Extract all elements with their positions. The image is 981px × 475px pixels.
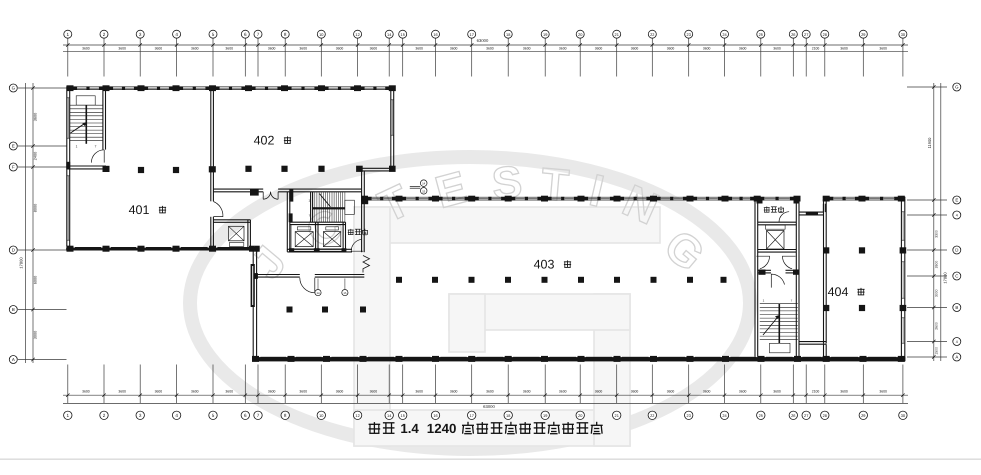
svg-text:3600: 3600 xyxy=(879,47,887,51)
svg-text:3600: 3600 xyxy=(118,390,126,394)
svg-text:8: 8 xyxy=(284,413,287,418)
svg-text:D: D xyxy=(12,248,15,253)
svg-text:2100: 2100 xyxy=(812,47,820,51)
svg-text:3600: 3600 xyxy=(370,390,378,394)
svg-text:G: G xyxy=(955,85,959,90)
svg-text:2600: 2600 xyxy=(934,261,938,269)
svg-text:18: 18 xyxy=(506,32,510,37)
svg-text:3600: 3600 xyxy=(336,47,344,51)
svg-text:7: 7 xyxy=(95,145,97,149)
svg-text:15: 15 xyxy=(401,32,405,37)
svg-text:16: 16 xyxy=(433,32,437,37)
svg-text:3600: 3600 xyxy=(336,390,344,394)
svg-text:3600: 3600 xyxy=(225,390,233,394)
svg-text:7: 7 xyxy=(257,413,260,418)
svg-text:3000: 3000 xyxy=(934,289,938,297)
svg-text:2100: 2100 xyxy=(812,390,820,394)
svg-text:404: 404 xyxy=(828,285,849,299)
svg-text:E: E xyxy=(955,198,958,203)
svg-text:B: B xyxy=(12,307,15,312)
svg-text:1500: 1500 xyxy=(934,347,938,355)
svg-text:16: 16 xyxy=(433,413,437,418)
svg-text:11900: 11900 xyxy=(927,137,932,149)
svg-text:3600: 3600 xyxy=(450,390,458,394)
svg-text:25: 25 xyxy=(759,32,763,37)
svg-text:3600: 3600 xyxy=(631,390,639,394)
svg-text:3600: 3600 xyxy=(191,47,199,51)
svg-text:3600: 3600 xyxy=(155,390,163,394)
svg-text:3600: 3600 xyxy=(268,390,276,394)
svg-text:25: 25 xyxy=(759,413,763,418)
svg-text:1: 1 xyxy=(67,32,70,37)
svg-text:15: 15 xyxy=(422,189,426,193)
svg-text:4: 4 xyxy=(956,214,958,218)
svg-text:3600: 3600 xyxy=(370,47,378,51)
svg-text:23: 23 xyxy=(687,32,691,37)
svg-text:12: 12 xyxy=(355,413,359,418)
svg-text:18: 18 xyxy=(506,413,510,418)
svg-text:3600: 3600 xyxy=(155,47,163,51)
svg-text:B: B xyxy=(955,305,958,310)
svg-text:2: 2 xyxy=(103,32,106,37)
svg-text:27: 27 xyxy=(804,413,808,418)
svg-text:4: 4 xyxy=(175,413,178,418)
svg-text:A: A xyxy=(955,355,958,360)
svg-text:26: 26 xyxy=(791,32,795,37)
svg-text:2400: 2400 xyxy=(33,152,37,160)
svg-text:21: 21 xyxy=(615,32,619,37)
svg-text:3: 3 xyxy=(139,413,142,418)
svg-text:17: 17 xyxy=(470,413,474,418)
svg-text:19: 19 xyxy=(543,32,547,37)
svg-text:3300: 3300 xyxy=(934,230,938,238)
svg-text:3600: 3600 xyxy=(523,47,531,51)
svg-text:402: 402 xyxy=(254,134,275,148)
svg-text:14: 14 xyxy=(316,291,320,295)
svg-text:63000: 63000 xyxy=(477,38,489,43)
svg-text:3600: 3600 xyxy=(82,390,90,394)
svg-text:7: 7 xyxy=(257,32,260,37)
svg-text:63000: 63000 xyxy=(483,404,495,409)
svg-text:3600: 3600 xyxy=(268,47,276,51)
svg-text:A: A xyxy=(12,357,15,362)
svg-text:3600: 3600 xyxy=(299,47,307,51)
svg-text:2: 2 xyxy=(103,413,106,418)
svg-text:3600: 3600 xyxy=(415,390,423,394)
svg-text:17800: 17800 xyxy=(19,257,24,269)
svg-text:3600: 3600 xyxy=(739,47,747,51)
svg-text:F: F xyxy=(12,165,15,170)
svg-text:27: 27 xyxy=(804,32,808,37)
svg-text:3600: 3600 xyxy=(773,390,781,394)
svg-text:3600: 3600 xyxy=(840,390,848,394)
svg-text:5: 5 xyxy=(212,413,215,418)
svg-text:3600: 3600 xyxy=(631,47,639,51)
svg-text:3600: 3600 xyxy=(191,390,199,394)
svg-text:3600: 3600 xyxy=(667,47,675,51)
svg-text:3600: 3600 xyxy=(33,113,37,121)
svg-text:D: D xyxy=(955,248,958,253)
svg-text:3600: 3600 xyxy=(703,47,711,51)
svg-text:E: E xyxy=(12,144,15,149)
svg-text:3600: 3600 xyxy=(595,47,603,51)
svg-text:3600: 3600 xyxy=(840,47,848,51)
svg-text:29: 29 xyxy=(861,32,865,37)
svg-text:6: 6 xyxy=(244,413,247,418)
svg-text:15: 15 xyxy=(343,291,347,295)
svg-text:15: 15 xyxy=(401,413,405,418)
svg-text:3600: 3600 xyxy=(739,390,747,394)
svg-text:4: 4 xyxy=(175,32,178,37)
svg-text:T: T xyxy=(539,158,571,211)
svg-text:1: 1 xyxy=(76,145,78,149)
svg-text:3600: 3600 xyxy=(559,47,567,51)
svg-text:1240: 1240 xyxy=(427,421,457,436)
svg-text:28: 28 xyxy=(823,413,827,418)
svg-text:1.4: 1.4 xyxy=(400,421,419,436)
svg-text:21: 21 xyxy=(615,413,619,418)
svg-text:5: 5 xyxy=(212,32,215,37)
svg-text:3600: 3600 xyxy=(523,390,531,394)
svg-text:C: C xyxy=(955,274,958,279)
svg-text:17800: 17800 xyxy=(943,272,948,284)
svg-text:29: 29 xyxy=(861,413,865,418)
svg-text:3600: 3600 xyxy=(299,390,307,394)
svg-text:8: 8 xyxy=(284,32,287,37)
svg-text:3600: 3600 xyxy=(879,390,887,394)
svg-text:3600: 3600 xyxy=(415,47,423,51)
svg-text:G: G xyxy=(12,86,16,91)
svg-text:3600: 3600 xyxy=(595,390,603,394)
svg-text:1: 1 xyxy=(67,413,70,418)
svg-text:3600: 3600 xyxy=(82,47,90,51)
svg-text:28: 28 xyxy=(823,32,827,37)
svg-text:3600: 3600 xyxy=(486,390,494,394)
svg-text:3600: 3600 xyxy=(450,47,458,51)
svg-text:3600: 3600 xyxy=(118,47,126,51)
svg-text:12: 12 xyxy=(355,32,359,37)
svg-text:23: 23 xyxy=(687,413,691,418)
svg-text:401: 401 xyxy=(129,203,150,217)
svg-text:6000: 6000 xyxy=(33,276,37,284)
svg-text:3600: 3600 xyxy=(486,47,494,51)
svg-text:3: 3 xyxy=(139,32,142,37)
svg-text:3600: 3600 xyxy=(773,47,781,51)
svg-text:3600: 3600 xyxy=(225,47,233,51)
svg-text:8000: 8000 xyxy=(33,204,37,212)
svg-text:22: 22 xyxy=(650,32,654,37)
svg-text:17: 17 xyxy=(470,32,474,37)
svg-text:22: 22 xyxy=(650,413,654,418)
svg-text:3000: 3000 xyxy=(33,331,37,339)
svg-text:19: 19 xyxy=(543,413,547,418)
svg-text:6: 6 xyxy=(244,32,247,37)
svg-text:403: 403 xyxy=(534,258,555,272)
svg-text:3600: 3600 xyxy=(667,390,675,394)
svg-text:3600: 3600 xyxy=(559,390,567,394)
svg-text:14: 14 xyxy=(422,182,426,186)
svg-text:4: 4 xyxy=(956,340,958,344)
svg-text:26: 26 xyxy=(791,413,795,418)
svg-text:3600: 3600 xyxy=(703,390,711,394)
svg-text:2600: 2600 xyxy=(934,322,938,330)
